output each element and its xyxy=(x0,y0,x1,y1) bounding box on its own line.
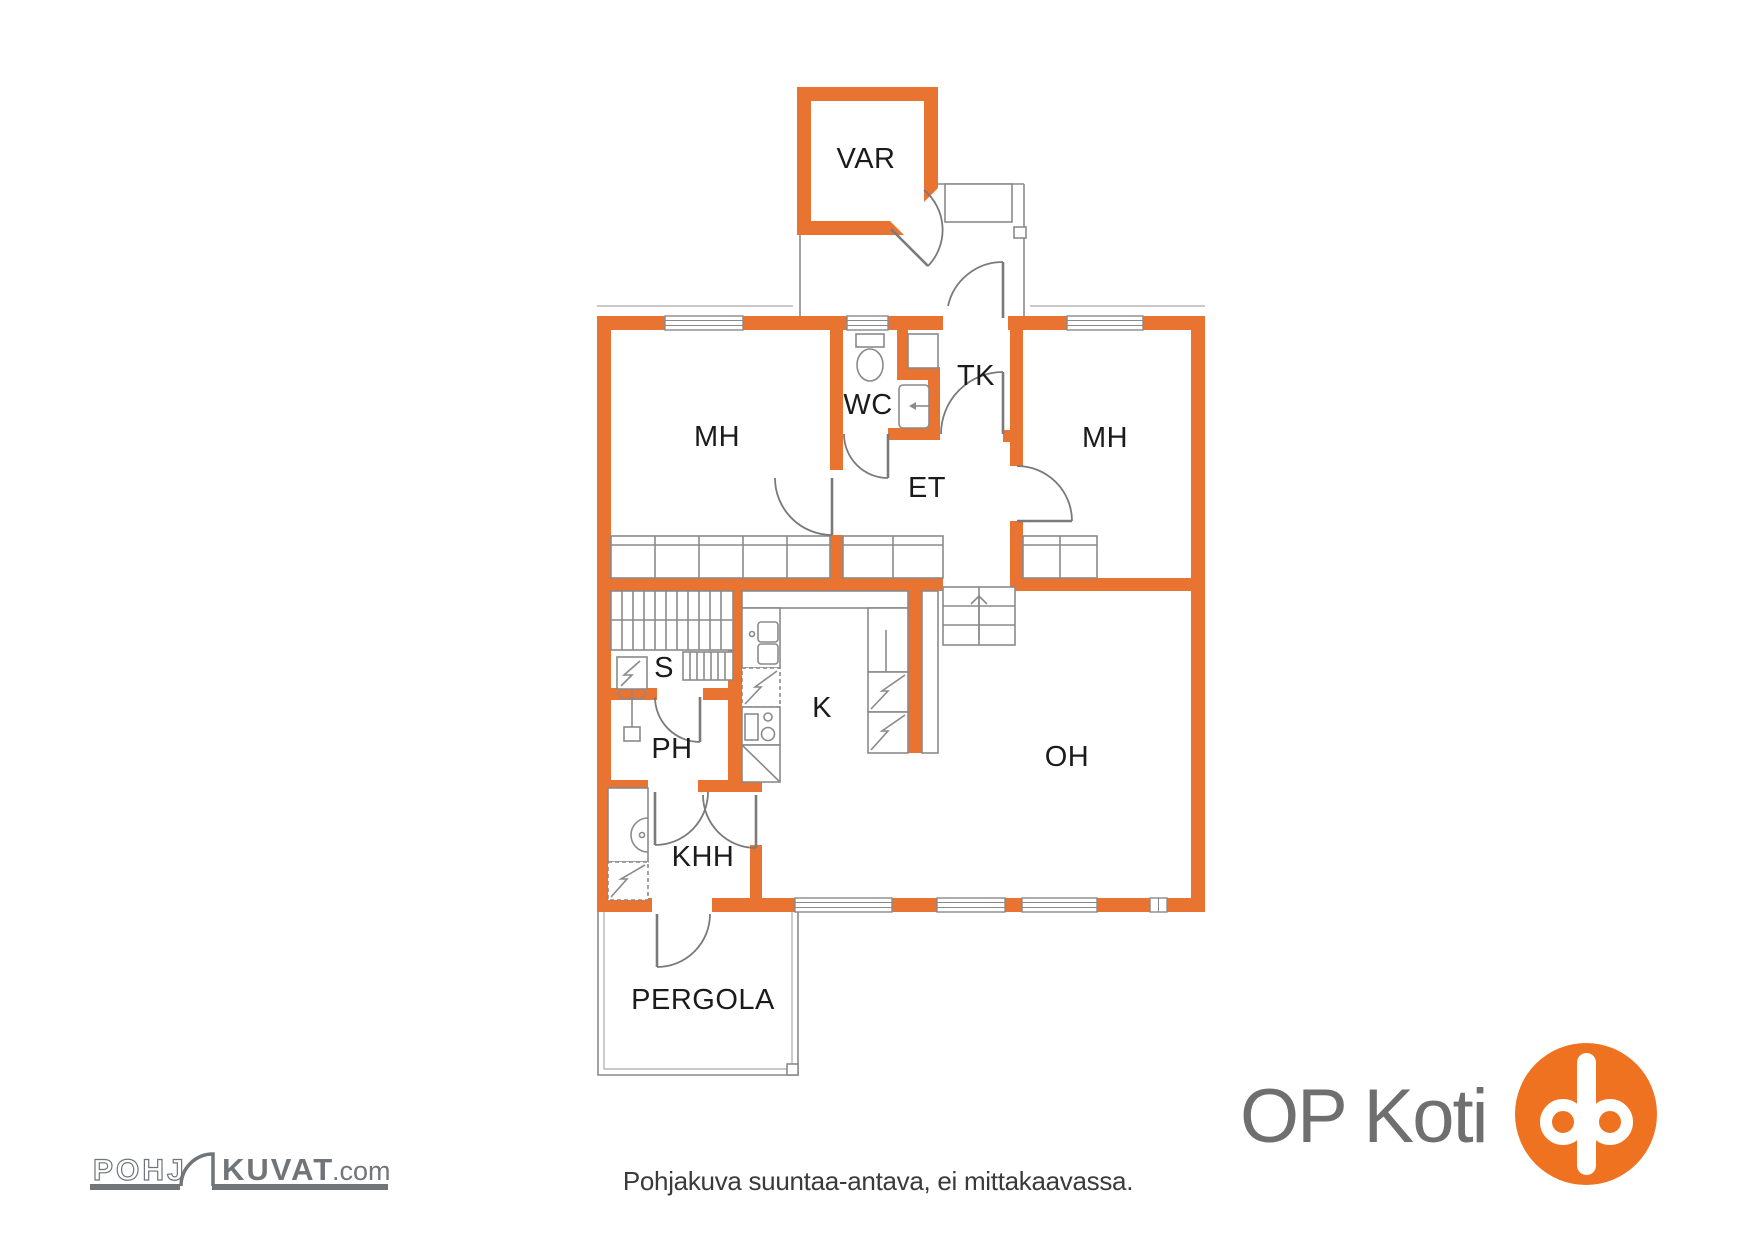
stove xyxy=(742,707,780,745)
label-k: K xyxy=(812,692,832,724)
faucet xyxy=(750,632,755,637)
bench xyxy=(945,184,1012,222)
toilet xyxy=(856,334,884,381)
shower-icon xyxy=(618,691,646,741)
stair-guard xyxy=(922,591,938,753)
label-khh: KHH xyxy=(672,841,735,873)
label-ph: PH xyxy=(651,733,692,765)
door-wc xyxy=(844,434,888,478)
floor-plan-drawing: VAR MH WC TK ET MH S PH K OH KHH PERGOLA… xyxy=(0,0,1754,1241)
closet-row-mh-left xyxy=(611,536,830,578)
label-mh-left: MH xyxy=(694,421,740,453)
window-mh-left xyxy=(665,316,743,330)
wc-sink xyxy=(899,385,930,428)
label-oh: OH xyxy=(1045,741,1090,773)
window-small xyxy=(1150,898,1167,912)
door-mh-right xyxy=(1017,466,1072,521)
fridge xyxy=(868,672,908,712)
window-mh-right xyxy=(1067,316,1143,330)
khh-fixtures xyxy=(608,788,648,900)
door-jamb-wedge xyxy=(924,188,938,202)
label-pergola: PERGOLA xyxy=(631,984,775,1016)
window-wc xyxy=(847,316,888,330)
pohjakuvat-suffix: .com xyxy=(332,1156,391,1186)
kitchen-fixtures xyxy=(742,591,908,782)
washing-machine xyxy=(608,862,648,900)
label-mh-right: MH xyxy=(1082,422,1128,454)
sink-bowl xyxy=(758,644,778,664)
op-koti-logo: OP Koti xyxy=(1240,1043,1657,1185)
door-ph-khh xyxy=(655,792,708,845)
window-oh-1 xyxy=(795,898,892,912)
khh-sink-unit xyxy=(608,788,648,862)
label-wc: WC xyxy=(843,389,892,421)
tall-cabinet xyxy=(868,608,908,672)
closet-row-mh-right xyxy=(1023,536,1097,578)
door-mh-left xyxy=(775,478,832,535)
entry-door xyxy=(948,262,1003,318)
ph-fixtures xyxy=(618,691,646,741)
pergola-post xyxy=(787,1064,798,1075)
door-pergola xyxy=(657,914,710,967)
disclaimer-text: Pohjakuva suuntaa-antava, ei mittakaavas… xyxy=(623,1166,1133,1196)
pohjakuvat-main: KUVAT xyxy=(222,1152,334,1187)
closet-row-et xyxy=(843,536,943,578)
window-oh-3 xyxy=(1022,898,1097,912)
sink-bowl xyxy=(758,622,778,642)
tk-cabinet xyxy=(908,334,938,368)
pohjakuvat-logo: POHJ KUVAT .com xyxy=(90,1152,391,1187)
wall-box xyxy=(1014,227,1026,238)
electrical-panel-icon xyxy=(617,657,647,689)
freezer xyxy=(868,712,908,753)
dishwasher xyxy=(742,668,780,707)
label-tk: TK xyxy=(957,360,995,392)
op-logo-icon xyxy=(1515,1043,1657,1185)
var-door xyxy=(891,190,943,266)
floor-plan-page: VAR MH WC TK ET MH S PH K OH KHH PERGOLA… xyxy=(0,0,1754,1241)
label-s: S xyxy=(654,652,674,684)
op-koti-wordmark: OP Koti xyxy=(1240,1074,1487,1159)
corner-cabinet xyxy=(742,745,780,782)
counter-top-band xyxy=(742,591,908,608)
label-et: ET xyxy=(908,472,946,504)
door-jamb-wedge xyxy=(890,221,904,235)
et-steps xyxy=(943,587,1015,645)
pohjakuvat-prefix: POHJ xyxy=(93,1154,187,1187)
var-building xyxy=(797,87,943,266)
label-var: VAR xyxy=(837,143,896,175)
window-oh-2 xyxy=(937,898,1005,912)
